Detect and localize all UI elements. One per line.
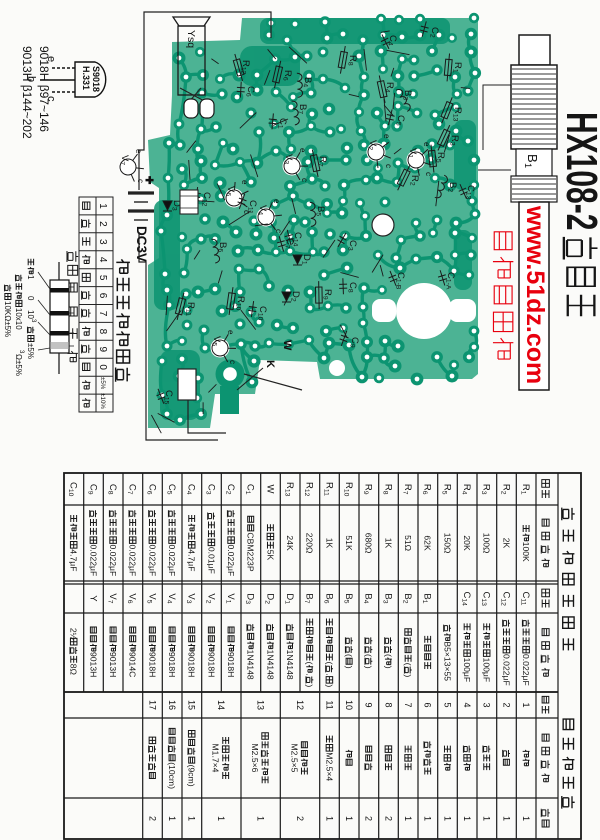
svg-text:0.022μF: 0.022μF [88,545,98,577]
svg-text:51K: 51K [344,535,354,551]
svg-text:M2.5×6: M2.5×6 [250,744,260,773]
svg-text:1: 1 [97,203,108,209]
svg-text:(: ( [305,662,315,665]
svg-text:9018H: 9018H [187,652,197,677]
svg-text:e: e [240,180,249,185]
svg-text:(: ( [364,654,374,657]
svg-text:2: 2 [383,816,393,821]
svg-text:(9cm): (9cm) [187,765,197,787]
svg-text:7: 7 [403,702,413,707]
svg-text:): ) [383,666,393,669]
svg-text:8Ω: 8Ω [69,664,79,676]
svg-text:9018H β97~146: 9018H β97~146 [37,46,51,132]
svg-text:.: . [324,673,334,675]
svg-text:(: ( [403,663,413,666]
svg-text:8: 8 [383,702,393,707]
svg-text:100μF: 100μF [462,658,472,683]
svg-text:100μF: 100μF [482,658,492,683]
svg-text:9013H: 9013H [88,652,98,677]
svg-text:220Ω: 220Ω [305,533,315,554]
svg-text:9018H: 9018H [147,652,157,677]
svg-text:0.022μF: 0.022μF [501,654,511,686]
svg-text:W: W [281,340,293,351]
svg-text:e: e [298,148,307,153]
svg-text:1K: 1K [383,538,393,549]
svg-text:B5×13×55: B5×13×55 [442,641,452,681]
svg-text:): ) [324,684,334,687]
svg-text:9014C: 9014C [128,652,138,677]
svg-text:0.022μF: 0.022μF [147,545,157,577]
svg-text:1: 1 [403,816,413,821]
svg-text:0.01μF: 0.01μF [206,547,216,574]
svg-text:4: 4 [97,257,108,263]
svg-text:4.7μF: 4.7μF [187,549,197,571]
svg-text:1: 1 [462,816,472,821]
svg-text:9013H: 9013H [108,652,118,677]
svg-text:10: 10 [344,700,354,710]
svg-text:7: 7 [97,311,108,317]
svg-text:100Ω: 100Ω [482,533,492,554]
svg-text:): ) [364,666,374,669]
svg-text:680Ω: 680Ω [364,533,374,554]
svg-text:5K: 5K [265,550,275,561]
svg-text:0.022μF: 0.022μF [167,545,177,577]
svg-text:c: c [384,164,393,168]
svg-text:e: e [422,142,431,147]
svg-text:2: 2 [501,702,511,707]
svg-text:4.7μF: 4.7μF [69,549,79,571]
svg-text:5: 5 [97,275,108,281]
svg-text:.: . [305,673,315,675]
svg-text:1: 1 [523,163,533,168]
svg-text:17: 17 [147,700,157,710]
svg-text:16: 16 [167,700,177,710]
svg-text:4: 4 [462,702,472,707]
svg-text:0: 0 [26,296,35,301]
svg-text:2: 2 [364,816,374,821]
svg-text:0.022μF: 0.022μF [521,654,531,686]
svg-text:9: 9 [97,347,108,353]
svg-text:0.022μF: 0.022μF [108,545,118,577]
svg-text:9018H: 9018H [206,652,216,677]
svg-text:100K: 100K [521,542,531,562]
svg-text:1: 1 [187,816,197,821]
svg-text:+: + [142,176,158,184]
svg-text:1: 1 [26,275,35,280]
svg-text:B: B [525,154,540,163]
svg-text:±5%: ±5% [99,377,106,390]
svg-text:Ysq: Ysq [185,30,197,48]
svg-text:HX108-2: HX108-2 [558,112,600,230]
svg-text:1: 1 [167,816,177,821]
svg-text:11: 11 [324,700,334,709]
svg-text:e: e [272,199,281,204]
svg-text:9: 9 [364,702,374,707]
svg-text:S9018: S9018 [91,66,101,92]
svg-text:24K: 24K [285,535,295,551]
svg-text:10x10: 10x10 [14,308,23,330]
svg-text:20K: 20K [462,535,472,551]
svg-text:1: 1 [423,816,433,821]
svg-text:1: 1 [521,816,531,821]
svg-text:c: c [424,172,433,176]
svg-text:0.022μF: 0.022μF [226,545,236,577]
svg-text:Ω±5%: Ω±5% [14,354,23,376]
svg-text:e: e [382,134,391,139]
svg-text:1: 1 [216,816,226,821]
svg-text:1: 1 [344,816,354,821]
svg-text:1: 1 [256,816,266,821]
svg-text:9018H: 9018H [226,652,236,677]
svg-text:): ) [344,666,354,669]
svg-text:(: ( [344,654,354,657]
svg-text:1: 1 [442,816,452,821]
svg-text:2: 2 [97,221,108,227]
svg-text:3: 3 [97,239,108,245]
svg-text:c: c [274,229,283,233]
svg-text:1: 1 [482,816,492,821]
svg-text:): ) [305,684,315,687]
svg-text:(10cm): (10cm) [167,762,177,789]
svg-text:12: 12 [295,700,305,710]
svg-text:CBM223P: CBM223P [246,532,256,571]
svg-text:3: 3 [482,702,492,707]
svg-text:±10%: ±10% [99,393,106,409]
svg-text:14: 14 [216,700,226,710]
svg-text:5: 5 [442,702,452,707]
svg-text:0: 0 [97,364,108,370]
svg-text:1: 1 [521,702,531,707]
svg-text:62K: 62K [423,535,433,551]
svg-text:8: 8 [97,329,108,335]
svg-text:1N4148: 1N4148 [265,650,275,680]
svg-text:0.022μF: 0.022μF [128,545,138,577]
svg-text:(: ( [324,662,334,665]
svg-text:9018H: 9018H [167,652,177,677]
svg-text:2K: 2K [501,538,511,549]
svg-text:6: 6 [423,702,433,707]
svg-text:M1.7×4: M1.7×4 [211,744,221,773]
svg-text:1N4148: 1N4148 [285,650,295,680]
svg-text:c: c [300,178,309,182]
svg-text:51Ω: 51Ω [403,535,413,552]
svg-text:Y: Y [87,595,98,602]
svg-text:M2.5×5: M2.5×5 [289,744,299,773]
svg-text:(: ( [383,654,393,657]
svg-text:e: e [226,330,235,335]
svg-text:6: 6 [97,293,108,299]
svg-text:1: 1 [501,816,511,821]
svg-text:2: 2 [147,816,157,821]
svg-text:2: 2 [295,816,305,821]
svg-text:W: W [264,485,275,494]
svg-text:13: 13 [256,700,266,710]
svg-text:1K: 1K [324,538,334,549]
svg-text:150Ω: 150Ω [442,533,452,554]
svg-text:www.51dz.com: www.51dz.com [521,205,549,384]
svg-text:K: K [264,360,276,368]
svg-text:9013H β144~202: 9013H β144~202 [20,46,34,139]
svg-text:H.331: H.331 [81,66,91,90]
svg-text:c: c [228,360,237,364]
svg-text:10KΩ±5%: 10KΩ±5% [3,301,12,337]
svg-text:±5%: ±5% [26,343,35,359]
svg-text:M2.5×4: M2.5×4 [324,752,334,781]
svg-text:): ) [403,674,413,677]
svg-text:1N4148: 1N4148 [246,650,256,680]
svg-text:DC3V: DC3V [134,226,149,262]
svg-text:15: 15 [187,700,197,710]
svg-text:1: 1 [324,816,334,821]
